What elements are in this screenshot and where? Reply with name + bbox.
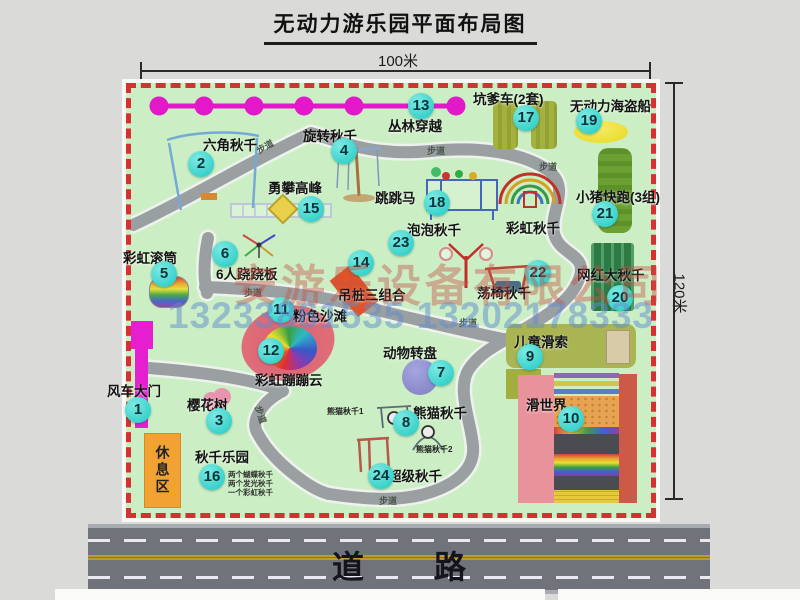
path-label-3: 步道 xyxy=(539,160,557,173)
path-label-7: 步道 xyxy=(379,494,397,507)
badge-climbing-peak: 15 xyxy=(298,196,324,222)
swing-paradise-note-3: 一个彩虹秋千 xyxy=(228,488,273,497)
slide-world-dark-1 xyxy=(554,434,619,454)
road-label: 道路 xyxy=(88,542,710,588)
badge-super-swing: 24 xyxy=(368,463,394,489)
slide-world-red-band xyxy=(619,374,637,503)
slide-world-stripe-yellow xyxy=(554,381,619,386)
swing-paradise-note-1: 两个蝴蝶秋千 xyxy=(228,470,273,479)
rest-area: 休息区 xyxy=(144,433,181,508)
sidewalk-strip-left xyxy=(55,589,545,600)
dimension-tick-top-left xyxy=(140,62,142,79)
badge-animal-carousel: 7 xyxy=(428,360,454,386)
dimension-tick-top-right xyxy=(649,62,651,79)
badge-pirate-ship: 19 xyxy=(576,108,602,134)
label-animal-carousel: 动物转盘 xyxy=(383,342,437,362)
badge-jumping-horse: 18 xyxy=(424,190,450,216)
badge-rotating-swing: 4 xyxy=(331,138,357,164)
page-title: 无动力游乐园平面布局图 xyxy=(0,8,800,45)
slide-world-yellow-wave xyxy=(554,490,619,503)
watermark-phone: 13233861535 13202178333 xyxy=(168,295,654,337)
badge-slide-world: 10 xyxy=(558,406,584,432)
label-piggy-run: 小猪快跑(3组) xyxy=(576,186,660,206)
badge-panda-swing: 8 xyxy=(393,410,419,436)
badge-cherry-tree: 3 xyxy=(206,408,232,434)
label-climbing-peak: 勇攀高峰 xyxy=(268,177,322,197)
badge-kengdie-car: 17 xyxy=(513,105,539,131)
road: 道路 xyxy=(88,524,710,594)
badge-windmill-gate: 1 xyxy=(125,397,151,423)
badge-jungle-crossing: 13 xyxy=(408,93,434,119)
badge-rainbow-roller: 5 xyxy=(151,261,177,287)
sidewalk-strip-right xyxy=(558,589,800,600)
label-hexagon-swing: 六角秋千 xyxy=(203,134,257,154)
label-panda-swing: 熊猫秋千 xyxy=(413,402,467,422)
path-label-2: 步道 xyxy=(427,144,445,157)
badge-rainbow-bounce-cloud: 12 xyxy=(258,338,284,364)
label-kengdie-car: 坑爹车(2套) xyxy=(473,88,544,108)
slide-world-block xyxy=(506,369,639,505)
badge-piggy-run: 21 xyxy=(592,201,618,227)
label-super-swing: 超级秋千 xyxy=(388,465,442,485)
slide-world-dark-2 xyxy=(554,476,619,490)
label-swing-paradise: 秋千乐园 xyxy=(195,446,249,466)
slide-world-rainbow-band xyxy=(554,454,619,476)
dimension-tick-right-bottom xyxy=(665,498,683,500)
badge-hexagon-swing: 2 xyxy=(188,151,214,177)
page-title-text: 无动力游乐园平面布局图 xyxy=(264,8,537,45)
dimension-label-right: 120米 xyxy=(670,273,691,313)
label-panda-swing-2: 熊猫秋千2 xyxy=(416,444,452,455)
label-rainbow-bounce-cloud: 彩虹蹦蹦云 xyxy=(255,369,323,389)
label-bubble-swing: 泡泡秋千 xyxy=(407,219,461,239)
label-jumping-horse: 跳跳马 xyxy=(375,187,416,207)
slide-world-stripe-purple xyxy=(554,373,619,378)
dimension-label-top: 100米 xyxy=(378,50,418,71)
rest-area-label: 休息区 xyxy=(153,445,173,496)
badge-kids-zipline: 9 xyxy=(517,344,543,370)
swing-paradise-notes: 两个蝴蝶秋千 两个发光秋千 一个彩虹秋千 xyxy=(228,470,273,497)
label-rainbow-swing: 彩虹秋千 xyxy=(506,217,560,237)
swing-paradise-note-2: 两个发光秋千 xyxy=(228,479,273,488)
windmill-gate-top-block xyxy=(131,321,153,349)
badge-swing-paradise: 16 xyxy=(199,464,225,490)
label-panda-swing-1: 熊猫秋千1 xyxy=(327,406,363,417)
dimension-tick-right-top xyxy=(665,82,683,84)
screenshot-root: { "title": "无动力游乐园平面布局图", "dimensions": … xyxy=(0,0,800,600)
